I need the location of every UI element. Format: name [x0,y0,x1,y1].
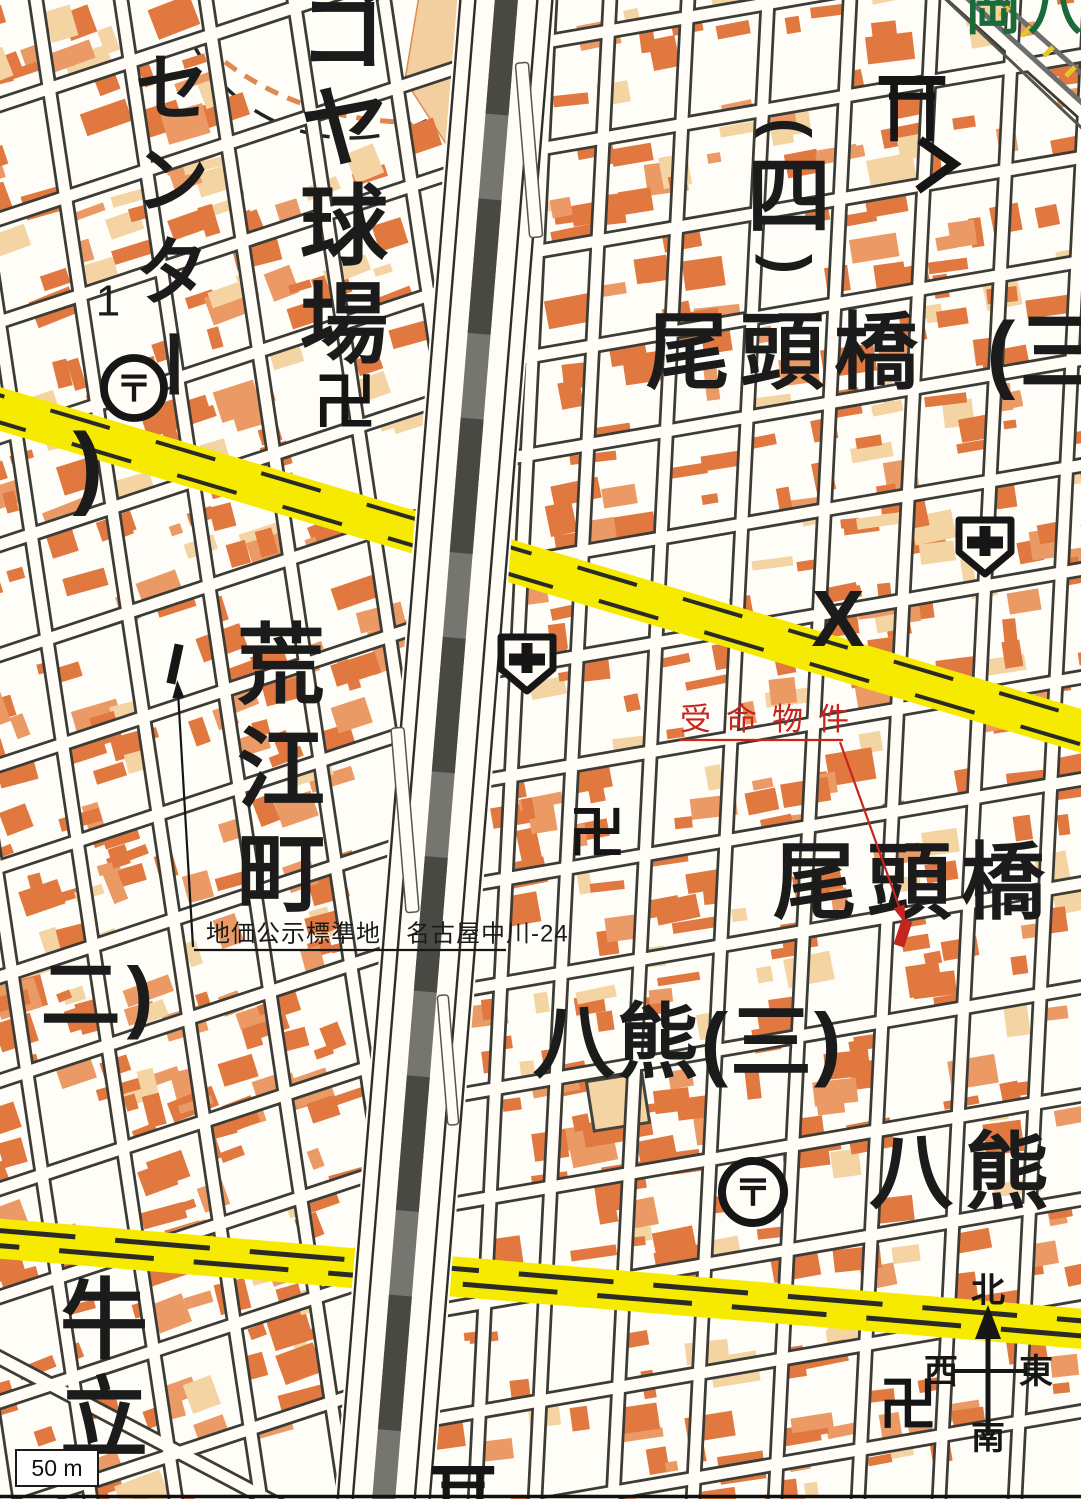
temple-icon-1: 卍 [314,369,376,438]
label-center-char: タ [135,231,209,314]
label-crossing-x: X [811,574,864,663]
label-araecho-char: 江 [237,720,325,819]
compass-label-south: 南 [971,1419,1005,1457]
temple-manji-glyph: 卍 [314,369,376,438]
label-ushitate-char: 牛 [60,1271,148,1370]
compass-label-north: 北 [971,1272,1005,1310]
map-canvas[interactable]: 卍卍卍〒〒ゴヤ球場センター1(四)尾頭橋尾頭橋荒江町八熊(三)八熊牛立二))(三… [0,0,1081,1499]
label-ushitate: 牛立 [60,1271,148,1468]
label-nagoya-stadium-char: ヤ [300,79,388,178]
label-block-number-1: 1 [96,276,120,325]
label-nagoya-stadium-char: ゴ [300,0,388,80]
label-center-char: セ [135,47,209,130]
scale-bar: 50 m [16,1450,98,1486]
label-araecho-char: 町 [237,824,325,923]
label-subject-property: 受命物件 [680,702,864,737]
label-chome-2-partial: 二) [41,951,160,1040]
label-yakuma-3-chome: 八熊(三) [533,998,844,1089]
temple-manji-glyph: 卍 [569,802,625,865]
temple-icon-2: 卍 [569,802,625,865]
label-araecho: 荒江町 [237,616,325,923]
scale-bar-label: 50 m [31,1455,82,1481]
label-landprice: 地価公示標準地 名古屋中川-24 [206,920,569,947]
map-viewport[interactable]: 卍卍卍〒〒ゴヤ球場センター1(四)尾頭橋尾頭橋荒江町八熊(三)八熊牛立二))(三… [0,0,1081,1499]
label-araecho-char: 荒 [237,616,325,715]
label-center-char: ン [135,139,209,222]
label-center-char: ー [130,327,213,401]
label-yakuma: 八熊 [869,1125,1061,1219]
label-otobashi-north: 尾頭橋 [646,305,928,399]
post-mark-glyph: 〒 [734,1172,771,1214]
label-chome-4-char: ( [755,118,823,139]
label-nagoya-stadium: ゴヤ球場 [300,0,389,374]
label-chome-4-char: ) [755,254,823,274]
compass-label-west: 西 [924,1353,958,1391]
label-nagoya-stadium-char: 場 [300,275,388,374]
post-office-icon-2: 〒 [722,1161,784,1223]
label-otobashi-south: 尾頭橋 [773,835,1055,929]
label-green-partial-top: 岡八 [966,0,1081,41]
label-chome-3-partial-right: (三 [987,305,1081,401]
label-paren-partial-left: ) [73,415,104,517]
label-nagoya-stadium-char: 球 [300,177,389,276]
label-chome-4-char: 四 [747,149,831,243]
compass-label-east: 東 [1019,1353,1053,1391]
